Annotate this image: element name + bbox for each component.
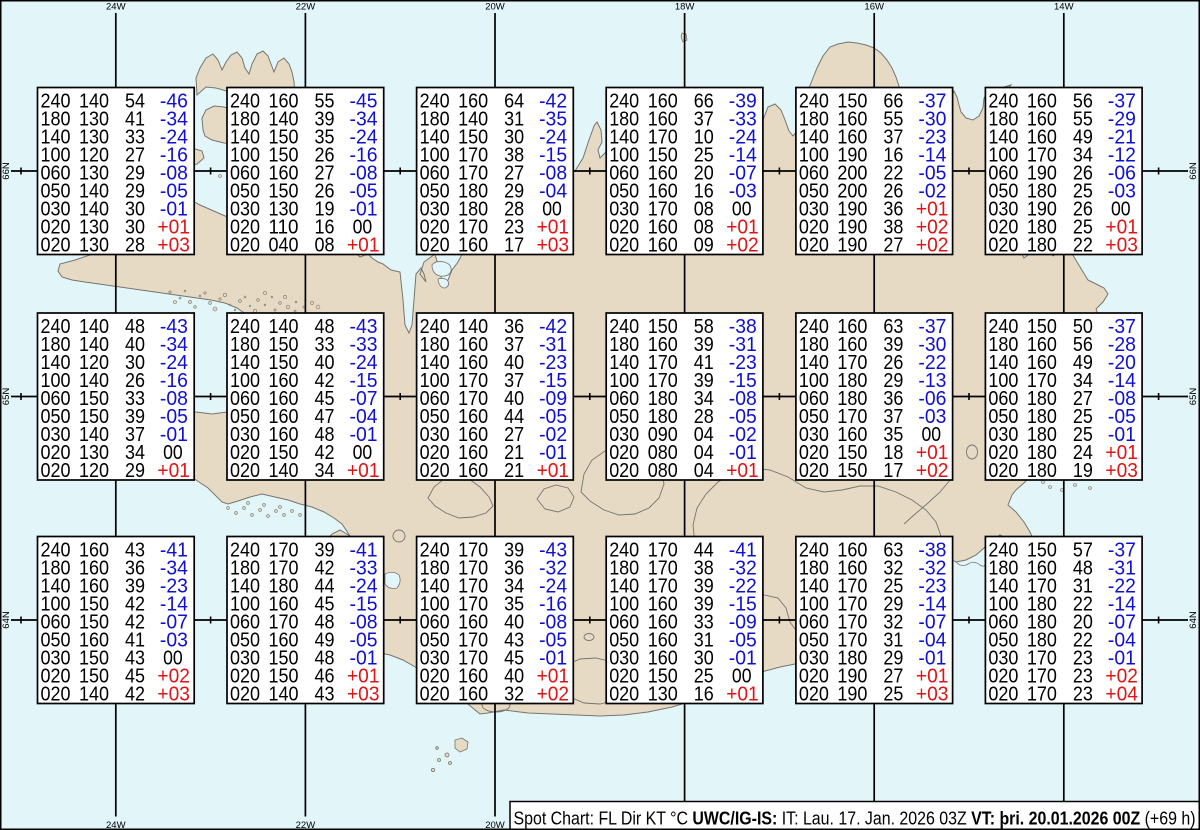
svg-text:160: 160 — [458, 460, 488, 482]
svg-text:+03: +03 — [1105, 235, 1138, 257]
svg-text:17: 17 — [883, 460, 903, 482]
svg-text:020: 020 — [420, 460, 450, 482]
svg-text:180: 180 — [1027, 235, 1057, 257]
svg-text:27: 27 — [883, 235, 903, 257]
svg-text:+03: +03 — [347, 684, 380, 706]
svg-text:020: 020 — [988, 235, 1018, 257]
svg-text:020: 020 — [799, 235, 829, 257]
svg-text:020: 020 — [420, 684, 450, 706]
svg-text:24W: 24W — [106, 2, 126, 13]
svg-text:080: 080 — [648, 460, 678, 482]
svg-text:160: 160 — [458, 684, 488, 706]
svg-text:020: 020 — [41, 684, 71, 706]
svg-text:04: 04 — [694, 460, 714, 482]
svg-text:+02: +02 — [537, 684, 570, 706]
svg-text:+01: +01 — [726, 684, 759, 706]
svg-text:20W: 20W — [485, 2, 505, 13]
svg-text:+03: +03 — [916, 684, 949, 706]
svg-text:040: 040 — [269, 235, 299, 257]
svg-text:+01: +01 — [537, 460, 570, 482]
svg-text:+02: +02 — [726, 235, 759, 257]
svg-text:64N: 64N — [1188, 611, 1199, 629]
svg-text:+01: +01 — [347, 235, 380, 257]
svg-text:18W: 18W — [675, 2, 695, 13]
svg-text:23: 23 — [1073, 684, 1093, 706]
svg-text:140: 140 — [269, 460, 299, 482]
svg-text:42: 42 — [125, 684, 145, 706]
svg-text:160: 160 — [648, 235, 678, 257]
svg-text:32: 32 — [504, 684, 524, 706]
svg-text:+03: +03 — [537, 235, 570, 257]
svg-text:21: 21 — [504, 460, 524, 482]
svg-text:43: 43 — [315, 684, 335, 706]
svg-text:020: 020 — [799, 460, 829, 482]
svg-text:66N: 66N — [1188, 162, 1199, 180]
svg-text:180: 180 — [1027, 460, 1057, 482]
svg-text:130: 130 — [79, 235, 109, 257]
svg-text:09: 09 — [694, 235, 714, 257]
svg-text:170: 170 — [1027, 684, 1057, 706]
svg-text:16: 16 — [694, 684, 714, 706]
svg-text:020: 020 — [230, 684, 260, 706]
svg-text:25: 25 — [883, 684, 903, 706]
svg-text:+03: +03 — [1105, 460, 1138, 482]
svg-text:120: 120 — [79, 460, 109, 482]
svg-text:16W: 16W — [864, 2, 884, 13]
svg-text:19: 19 — [1073, 460, 1093, 482]
svg-text:29: 29 — [125, 460, 145, 482]
svg-text:020: 020 — [41, 235, 71, 257]
svg-text:020: 020 — [41, 460, 71, 482]
svg-text:+04: +04 — [1105, 684, 1138, 706]
svg-text:+01: +01 — [347, 460, 380, 482]
svg-text:+03: +03 — [157, 684, 190, 706]
svg-text:66N: 66N — [1, 162, 12, 180]
svg-text:14W: 14W — [1054, 2, 1074, 13]
svg-text:020: 020 — [230, 460, 260, 482]
svg-text:190: 190 — [837, 235, 867, 257]
svg-text:28: 28 — [125, 235, 145, 257]
svg-text:020: 020 — [988, 460, 1018, 482]
svg-text:34: 34 — [315, 460, 335, 482]
svg-text:020: 020 — [988, 684, 1018, 706]
svg-text:130: 130 — [648, 684, 678, 706]
svg-text:Spot Chart: FL Dir KT °C UWC/I: Spot Chart: FL Dir KT °C UWC/IG-IS: IT: … — [514, 808, 1196, 828]
svg-text:020: 020 — [420, 235, 450, 257]
svg-text:22W: 22W — [296, 2, 316, 13]
svg-text:+03: +03 — [157, 235, 190, 257]
svg-text:64N: 64N — [1, 611, 12, 629]
svg-text:+02: +02 — [916, 235, 949, 257]
svg-text:17: 17 — [504, 235, 524, 257]
svg-text:150: 150 — [837, 460, 867, 482]
svg-text:22: 22 — [1073, 235, 1093, 257]
svg-text:020: 020 — [609, 460, 639, 482]
svg-text:65N: 65N — [1, 388, 12, 406]
svg-text:020: 020 — [230, 235, 260, 257]
svg-text:020: 020 — [799, 684, 829, 706]
svg-text:08: 08 — [315, 235, 335, 257]
svg-text:020: 020 — [609, 235, 639, 257]
svg-text:+02: +02 — [916, 460, 949, 482]
svg-text:+01: +01 — [726, 460, 759, 482]
svg-text:140: 140 — [269, 684, 299, 706]
svg-text:+01: +01 — [157, 460, 190, 482]
svg-text:190: 190 — [837, 684, 867, 706]
svg-text:020: 020 — [609, 684, 639, 706]
svg-text:160: 160 — [458, 235, 488, 257]
svg-text:140: 140 — [79, 684, 109, 706]
svg-text:65N: 65N — [1188, 388, 1199, 406]
